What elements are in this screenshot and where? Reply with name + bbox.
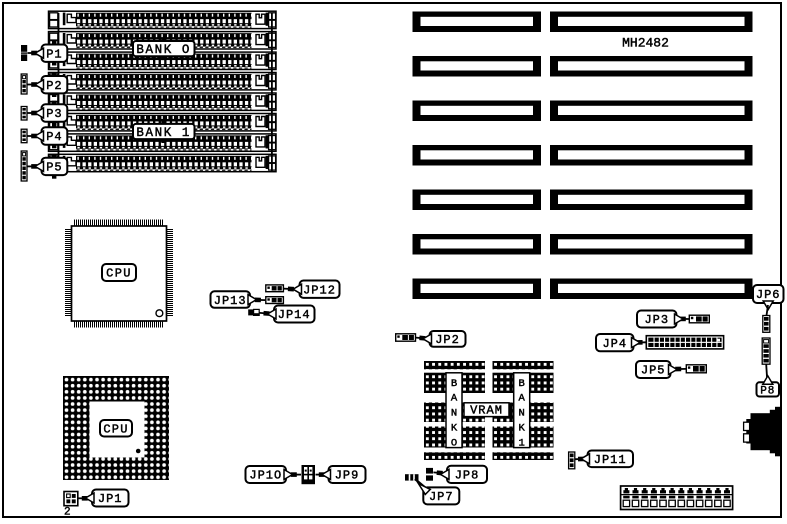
svg-text:K: K bbox=[519, 423, 526, 435]
svg-text:JP13: JP13 bbox=[214, 294, 247, 308]
svg-text:B: B bbox=[519, 378, 525, 390]
svg-text:JP7: JP7 bbox=[429, 490, 454, 504]
svg-text:JP12: JP12 bbox=[303, 283, 336, 297]
svg-text:CPU: CPU bbox=[103, 422, 128, 436]
svg-text:JP6: JP6 bbox=[756, 288, 781, 302]
svg-text:1: 1 bbox=[519, 437, 525, 449]
svg-text:P1: P1 bbox=[46, 47, 62, 61]
svg-text:BANK O: BANK O bbox=[136, 43, 191, 57]
svg-text:JP5: JP5 bbox=[641, 364, 666, 378]
svg-text:B: B bbox=[451, 378, 457, 390]
svg-text:N: N bbox=[451, 408, 457, 420]
svg-text:N: N bbox=[519, 408, 525, 420]
svg-text:A: A bbox=[451, 393, 458, 405]
svg-text:JP14: JP14 bbox=[278, 308, 311, 322]
svg-text:P3: P3 bbox=[46, 107, 62, 121]
svg-text:VRAM: VRAM bbox=[470, 404, 503, 418]
svg-text:JP11: JP11 bbox=[594, 453, 627, 467]
svg-text:JP9: JP9 bbox=[335, 469, 360, 483]
svg-text:JP3: JP3 bbox=[644, 313, 669, 327]
svg-text:MH2482: MH2482 bbox=[622, 36, 669, 51]
svg-text:JP4: JP4 bbox=[602, 337, 627, 351]
svg-text:BANK 1: BANK 1 bbox=[136, 126, 191, 140]
svg-text:JP2: JP2 bbox=[435, 333, 460, 347]
svg-text:P2: P2 bbox=[46, 79, 62, 93]
svg-text:CPU: CPU bbox=[106, 267, 132, 281]
svg-text:JP1O: JP1O bbox=[249, 469, 282, 483]
svg-text:A: A bbox=[519, 393, 526, 405]
svg-text:2: 2 bbox=[64, 507, 71, 519]
svg-text:P8: P8 bbox=[760, 385, 775, 397]
svg-text:JP1: JP1 bbox=[98, 492, 123, 506]
svg-text:O: O bbox=[451, 437, 457, 449]
svg-text:P5: P5 bbox=[46, 161, 62, 175]
svg-text:JP8: JP8 bbox=[455, 469, 480, 483]
svg-text:P4: P4 bbox=[46, 130, 62, 144]
svg-text:K: K bbox=[451, 423, 458, 435]
